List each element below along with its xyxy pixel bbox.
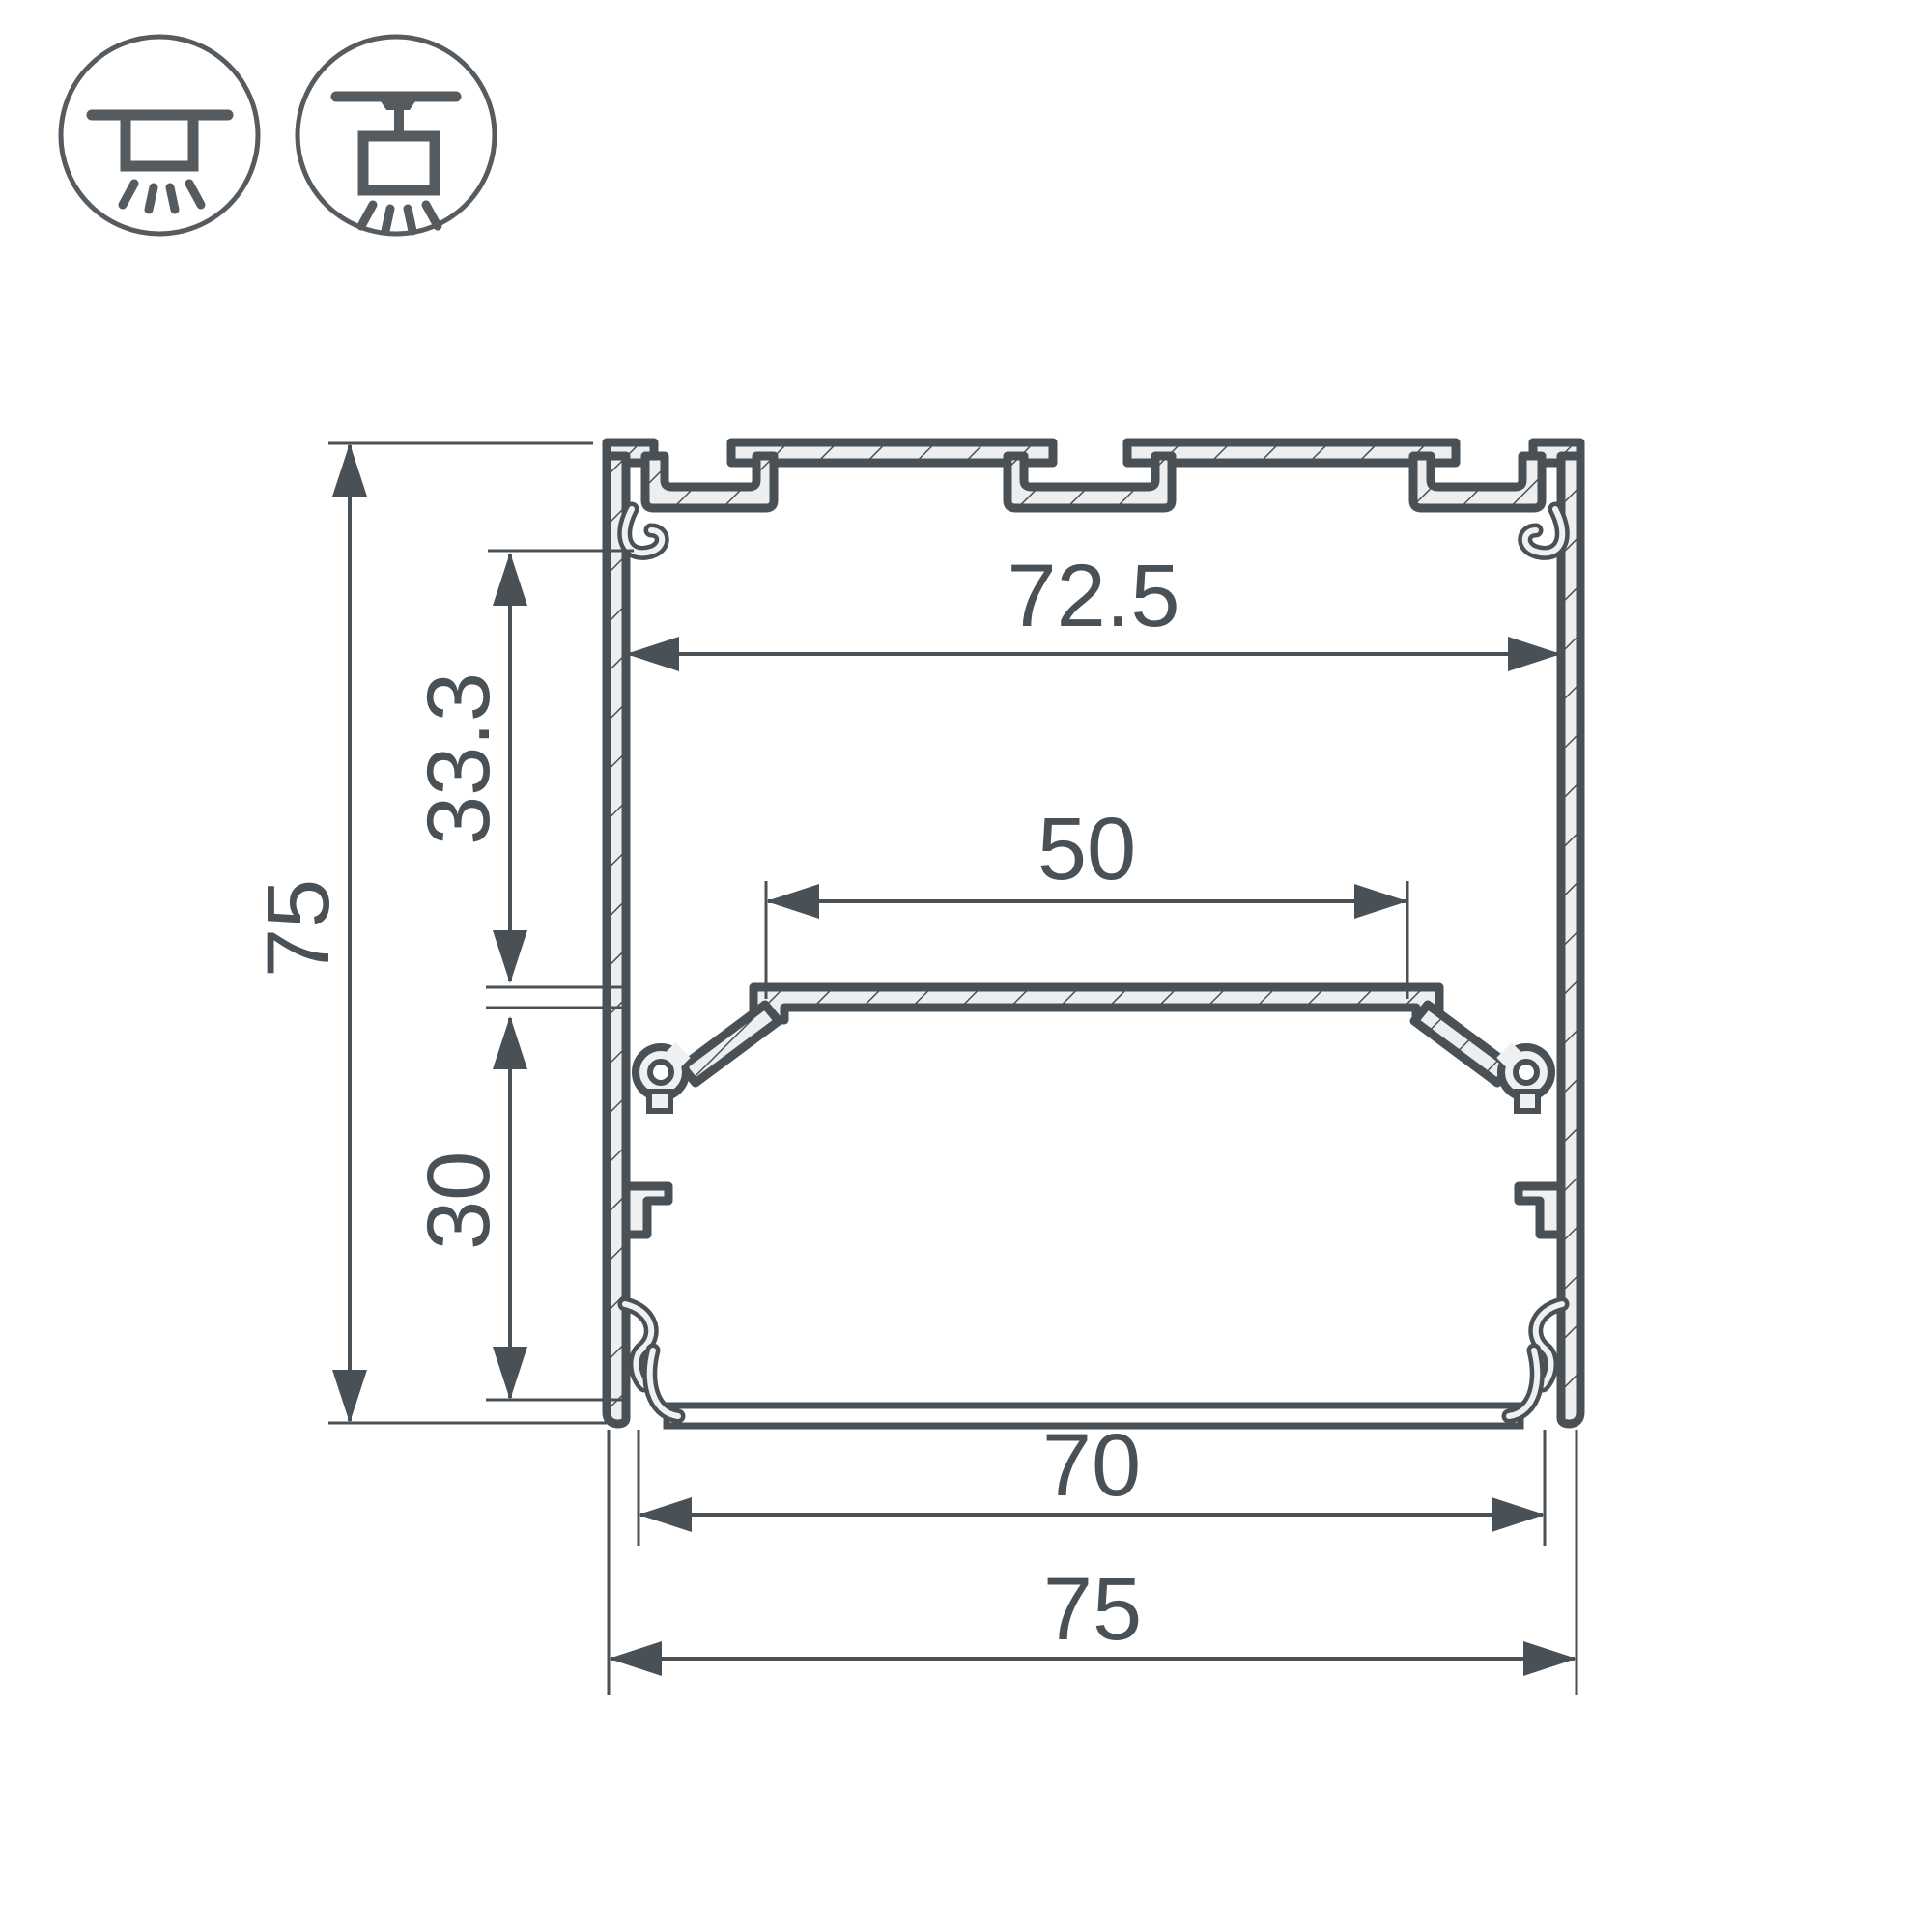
dim-label-overall-width: 75: [1043, 1560, 1142, 1659]
profile-cross-section-drawing: 72.5 50 70 75 75 33.3 30: [0, 0, 1932, 1932]
shelf-diagonal-left: [682, 1005, 779, 1083]
mounting-icons: [61, 37, 495, 234]
screw-boss-left: [636, 1042, 691, 1111]
top-hook-right: [1525, 509, 1563, 553]
dimension-arrows: [332, 443, 1577, 1676]
top-channel-right: [1413, 456, 1542, 508]
profile-box: [363, 136, 435, 190]
wall-clip-left: [626, 1186, 668, 1235]
dimension-lines: [350, 445, 1575, 1659]
dim-label-inner-width-bottom: 70: [1042, 1416, 1141, 1515]
wall-right: [1561, 456, 1580, 1424]
dimensions: 72.5 50 70 75 75 33.3 30: [249, 443, 1577, 1695]
wall-clip-right: [1519, 1186, 1561, 1235]
dim-label-inner-width-top: 72.5: [1007, 547, 1179, 645]
dim-label-led-shelf-width: 50: [1037, 800, 1136, 898]
top-hook-left: [625, 509, 663, 553]
surface-mount-circle: [61, 37, 258, 234]
led-shelf-plate: [753, 987, 1439, 1020]
dim-label-lower-inner-height: 30: [410, 1151, 508, 1250]
wall-left: [607, 456, 626, 1424]
suspended-mount-icon: [298, 37, 495, 234]
drawing-page: 72.5 50 70 75 75 33.3 30: [0, 0, 1932, 1932]
profile-box: [126, 118, 193, 166]
light-rays: [123, 184, 201, 210]
surface-mount-icon: [61, 37, 258, 234]
dim-label-overall-height: 75: [249, 879, 348, 978]
top-channel-left: [645, 456, 774, 508]
dim-label-upper-inner-height: 33.3: [410, 672, 508, 845]
top-bar-right: [1127, 442, 1456, 463]
shelf-diagonal-right: [1414, 1005, 1511, 1083]
screw-boss-right: [1496, 1042, 1551, 1111]
